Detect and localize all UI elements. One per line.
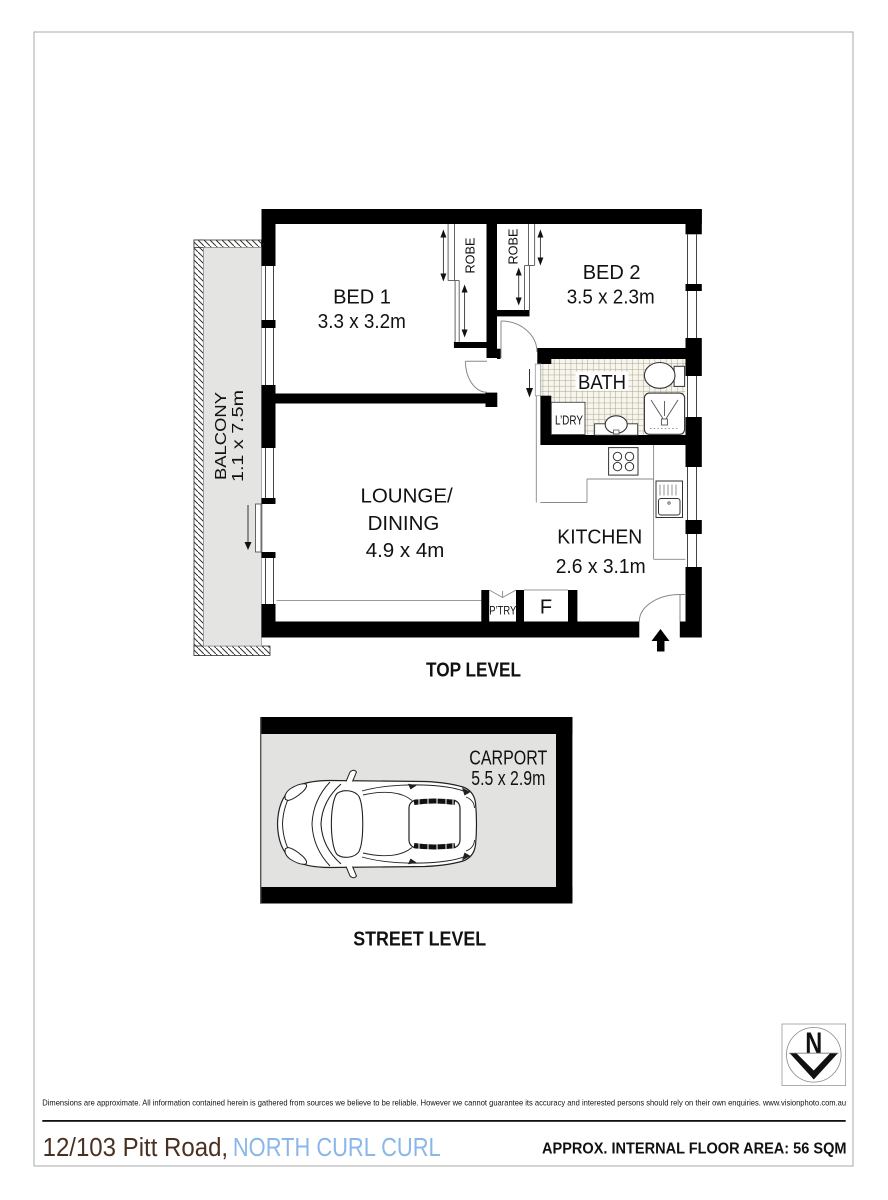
svg-text:DINING: DINING xyxy=(368,512,440,535)
svg-text:5.5 x 2.9m: 5.5 x 2.9m xyxy=(471,768,545,790)
svg-text:ROBE: ROBE xyxy=(464,238,478,274)
svg-text:Dimensions are approximate. Al: Dimensions are approximate. All informat… xyxy=(42,1098,846,1108)
svg-text:BATH: BATH xyxy=(578,372,626,394)
svg-text:3.3 x 3.2m: 3.3 x 3.2m xyxy=(318,311,406,333)
svg-text:BED 1: BED 1 xyxy=(333,287,391,309)
svg-text:ROBE: ROBE xyxy=(507,229,521,265)
svg-text:2.6 x 3.1m: 2.6 x 3.1m xyxy=(556,556,646,578)
svg-text:N: N xyxy=(805,1026,822,1061)
svg-text:BALCONY: BALCONY xyxy=(213,392,230,480)
svg-text:L’DRY: L’DRY xyxy=(555,414,584,428)
svg-text:NORTH CURL CURL: NORTH CURL CURL xyxy=(233,1134,441,1162)
svg-text:P’TRY: P’TRY xyxy=(489,604,516,618)
svg-text:LOUNGE/: LOUNGE/ xyxy=(360,485,453,508)
svg-text:BED 2: BED 2 xyxy=(583,262,641,284)
svg-text:APPROX. INTERNAL FLOOR AREA: 5: APPROX. INTERNAL FLOOR AREA: 56 SQM xyxy=(542,1140,847,1157)
svg-text:3.5 x 2.3m: 3.5 x 2.3m xyxy=(567,287,655,309)
svg-text:KITCHEN: KITCHEN xyxy=(557,527,642,549)
svg-text:4.9 x 4m: 4.9 x 4m xyxy=(366,539,445,562)
svg-text:12/103 Pitt Road,: 12/103 Pitt Road, xyxy=(43,1134,229,1162)
svg-text:STREET LEVEL: STREET LEVEL xyxy=(353,929,486,951)
svg-text:1.1 x 7.5m: 1.1 x 7.5m xyxy=(230,390,247,482)
svg-text:CARPORT: CARPORT xyxy=(469,748,547,770)
svg-text:F: F xyxy=(540,597,552,619)
svg-text:TOP LEVEL: TOP LEVEL xyxy=(426,660,521,682)
